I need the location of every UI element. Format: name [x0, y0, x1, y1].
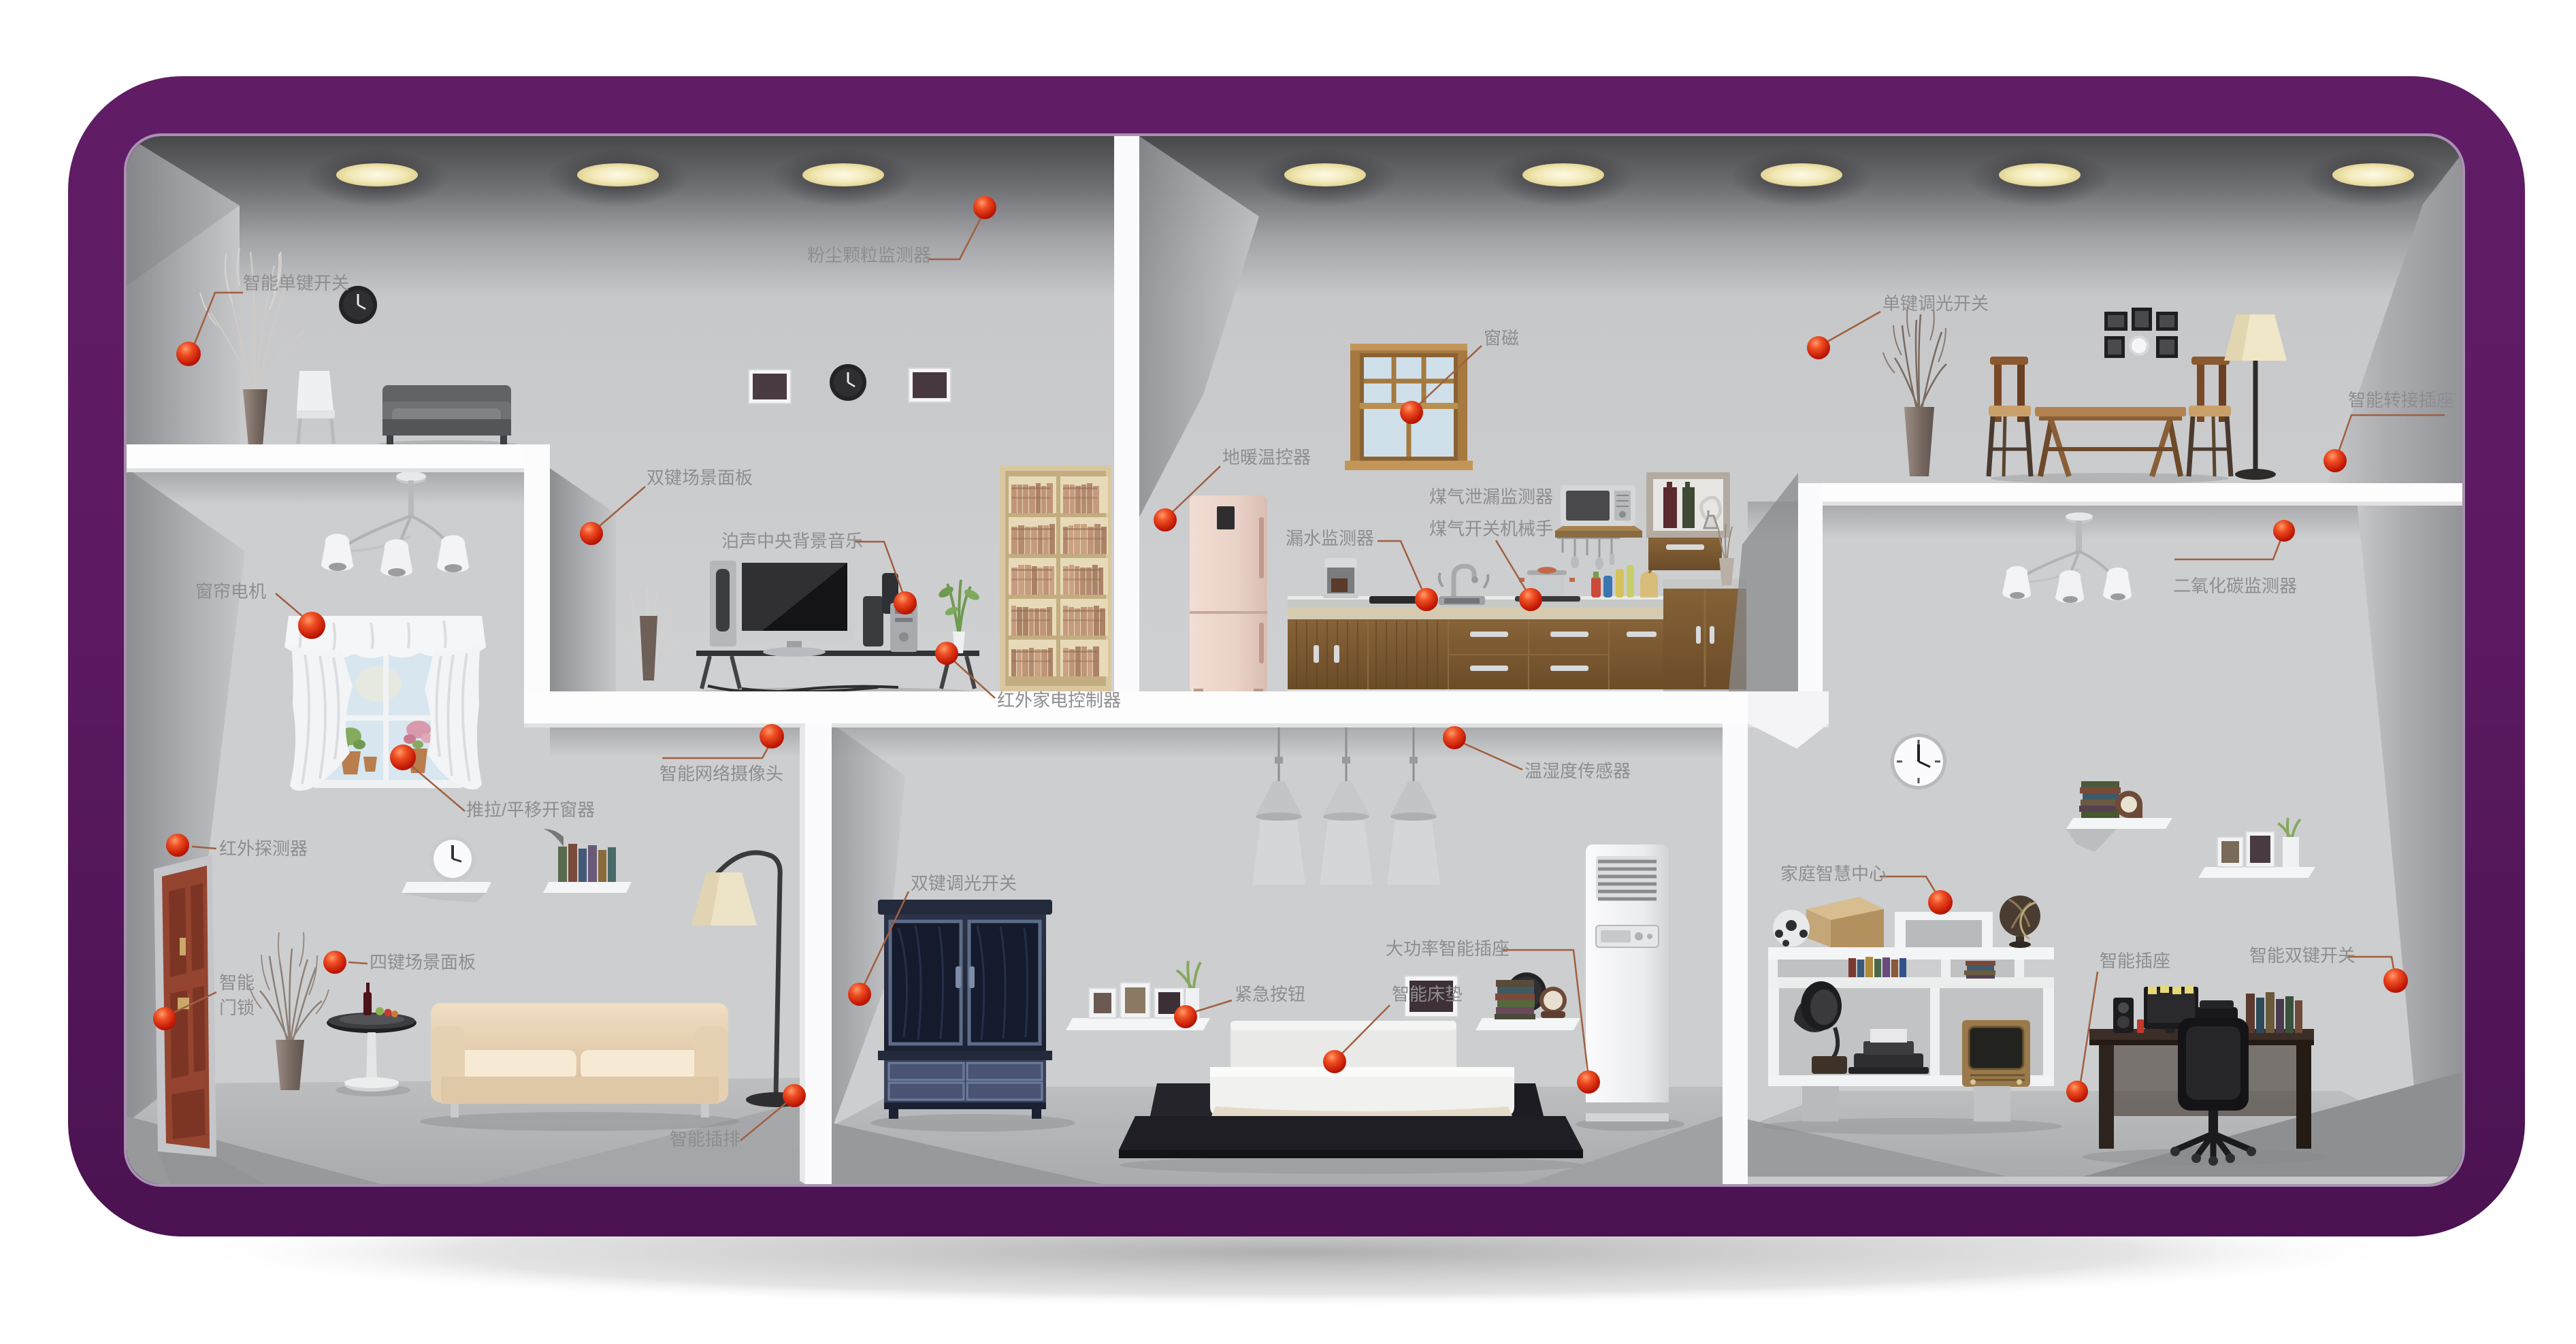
svg-text:窗帘电机: 窗帘电机	[195, 581, 266, 602]
svg-text:智能插座: 智能插座	[2100, 951, 2170, 971]
svg-text:煤气开关机械手: 煤气开关机械手	[1429, 519, 1553, 539]
svg-text:红外家电控制器: 红外家电控制器	[997, 690, 1121, 710]
svg-text:推拉/平移开窗器: 推拉/平移开窗器	[466, 800, 595, 820]
svg-text:家庭智慧中心: 家庭智慧中心	[1780, 864, 1887, 884]
svg-text:温湿度传感器: 温湿度传感器	[1525, 761, 1631, 781]
svg-text:门锁: 门锁	[219, 998, 255, 1018]
svg-text:单键调光开关: 单键调光开关	[1882, 293, 1989, 314]
svg-text:智能床垫: 智能床垫	[1392, 984, 1463, 1004]
svg-text:二氧化碳监测器: 二氧化碳监测器	[2173, 576, 2297, 596]
svg-text:智能单键开关: 智能单键开关	[243, 273, 349, 293]
svg-text:四键场景面板: 四键场景面板	[370, 952, 476, 972]
svg-text:漏水监测器: 漏水监测器	[1286, 528, 1374, 548]
svg-text:粉尘颗粒监测器: 粉尘颗粒监测器	[807, 245, 931, 265]
svg-text:紧急按钮: 紧急按钮	[1235, 984, 1305, 1004]
svg-text:煤气泄漏监测器: 煤气泄漏监测器	[1429, 487, 1553, 507]
svg-text:泊声中央背景音乐: 泊声中央背景音乐	[721, 531, 863, 551]
svg-text:双键场景面板: 双键场景面板	[647, 468, 753, 488]
svg-text:红外探测器: 红外探测器	[219, 838, 308, 859]
svg-text:双键调光开关: 双键调光开关	[911, 873, 1017, 894]
svg-text:智能双键开关: 智能双键开关	[2249, 945, 2355, 966]
svg-text:智能转接插座: 智能转接插座	[2348, 390, 2454, 410]
svg-text:窗磁: 窗磁	[1484, 328, 1519, 348]
svg-text:智能插排: 智能插排	[670, 1129, 740, 1149]
svg-text:大功率智能插座: 大功率智能插座	[1386, 938, 1510, 959]
svg-text:智能: 智能	[219, 972, 255, 993]
svg-text:地暖温控器: 地暖温控器	[1222, 447, 1311, 468]
svg-text:智能网络摄像头: 智能网络摄像头	[659, 764, 783, 784]
